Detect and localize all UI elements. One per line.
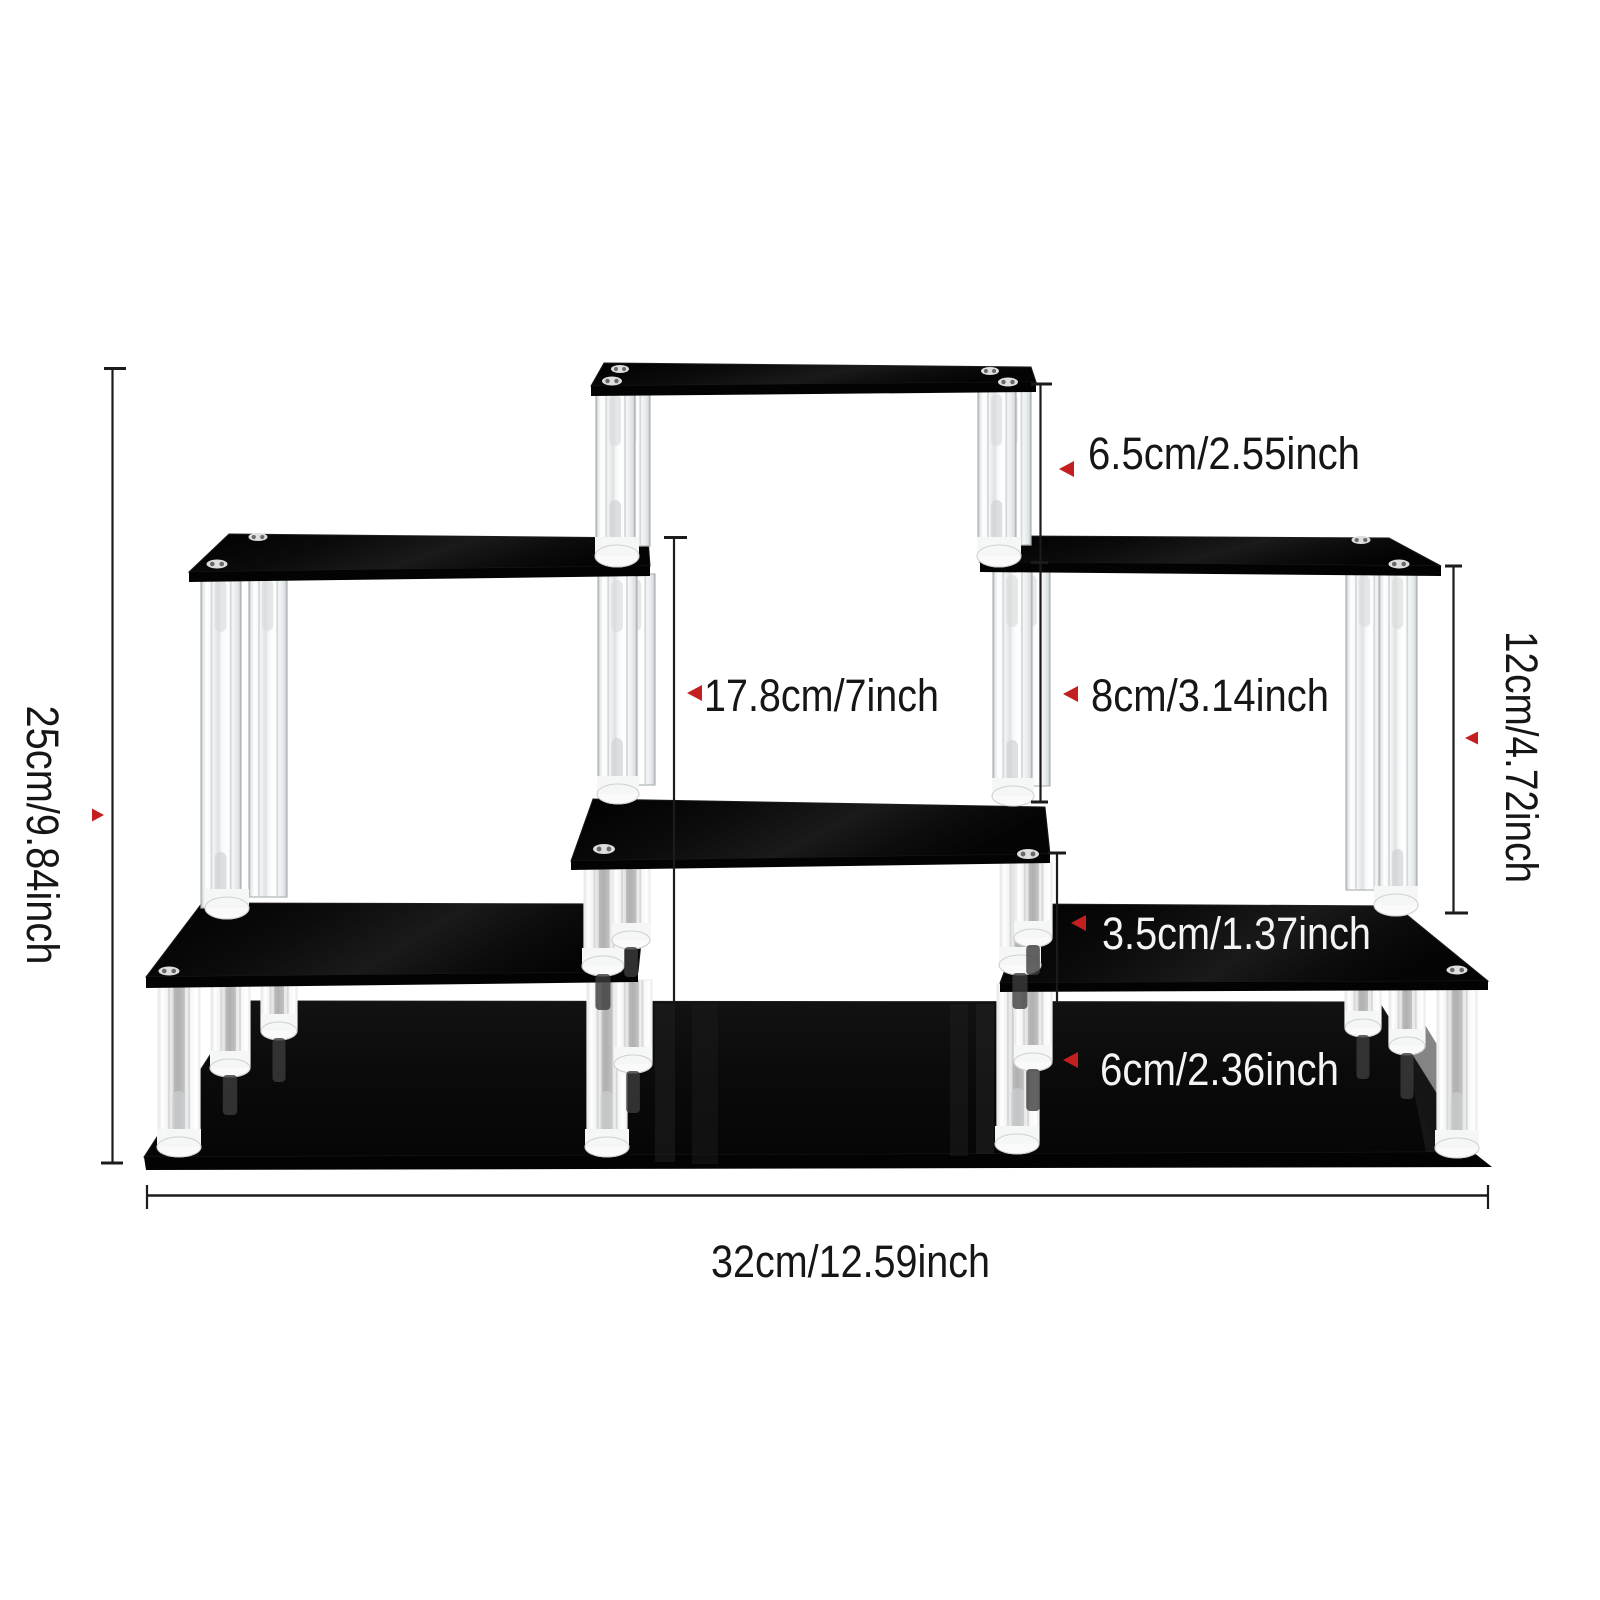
svg-text:17.8cm/7inch: 17.8cm/7inch: [704, 670, 939, 721]
svg-text:6cm/2.36inch: 6cm/2.36inch: [1100, 1044, 1339, 1095]
svg-text:3.5cm/1.37inch: 3.5cm/1.37inch: [1102, 908, 1371, 959]
svg-text:8cm/3.14inch: 8cm/3.14inch: [1091, 670, 1329, 721]
svg-text:12cm/4.72inch: 12cm/4.72inch: [1496, 631, 1547, 883]
svg-text:6.5cm/2.55inch: 6.5cm/2.55inch: [1088, 428, 1360, 479]
svg-text:25cm/9.84inch: 25cm/9.84inch: [17, 706, 68, 965]
svg-text:32cm/12.59inch: 32cm/12.59inch: [711, 1236, 990, 1287]
